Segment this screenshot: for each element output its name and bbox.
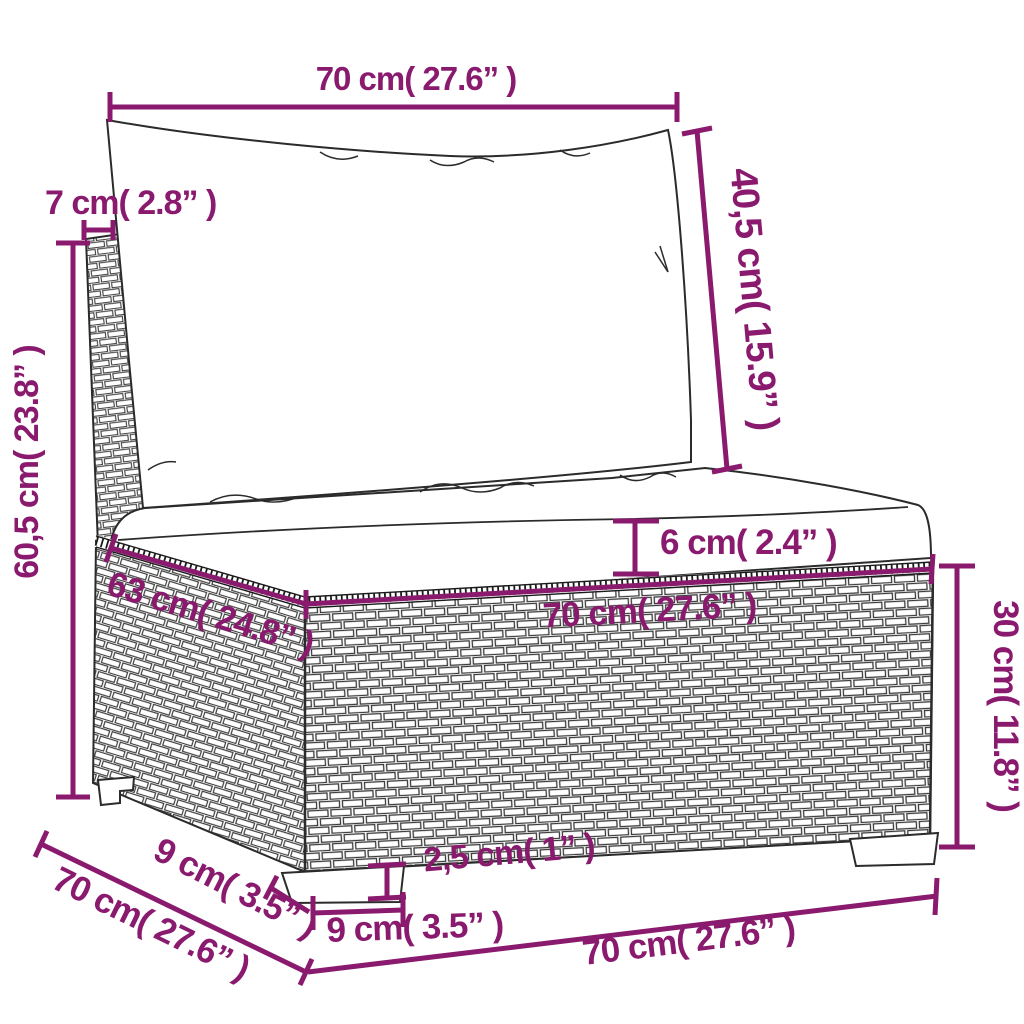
dimension-diagram: 70 cm( 27.6” ) 7 cm( 2.8” ) 60,5 cm( 23.… [0,0,1024,1024]
label-base-height: 30 cm( 11.8” ) [986,600,1024,812]
dim-total-height [56,243,90,797]
label-foot-width: 9 cm( 3.5” ) [326,905,504,950]
label-back-cushion-height: 40,5 cm( 15.9” ) [722,166,787,431]
sofa-line-art [86,120,938,903]
label-total-height: 60,5 cm( 23.8” ) [8,345,46,578]
foot-back-left [98,777,134,805]
label-back-width: 70 cm( 27.6” ) [316,60,517,97]
label-bottom-width: 70 cm( 27.6” ) [580,908,797,973]
sofa-dimension-drawing: 70 cm( 27.6” ) 7 cm( 2.8” ) 60,5 cm( 23.… [0,0,1024,1024]
label-seat-cushion-thickness: 6 cm( 2.4” ) [660,523,837,562]
foot-front-right [850,833,938,866]
label-back-thickness: 7 cm( 2.8” ) [45,184,216,222]
back-cushion [107,120,691,508]
dim-base-height [939,566,975,847]
